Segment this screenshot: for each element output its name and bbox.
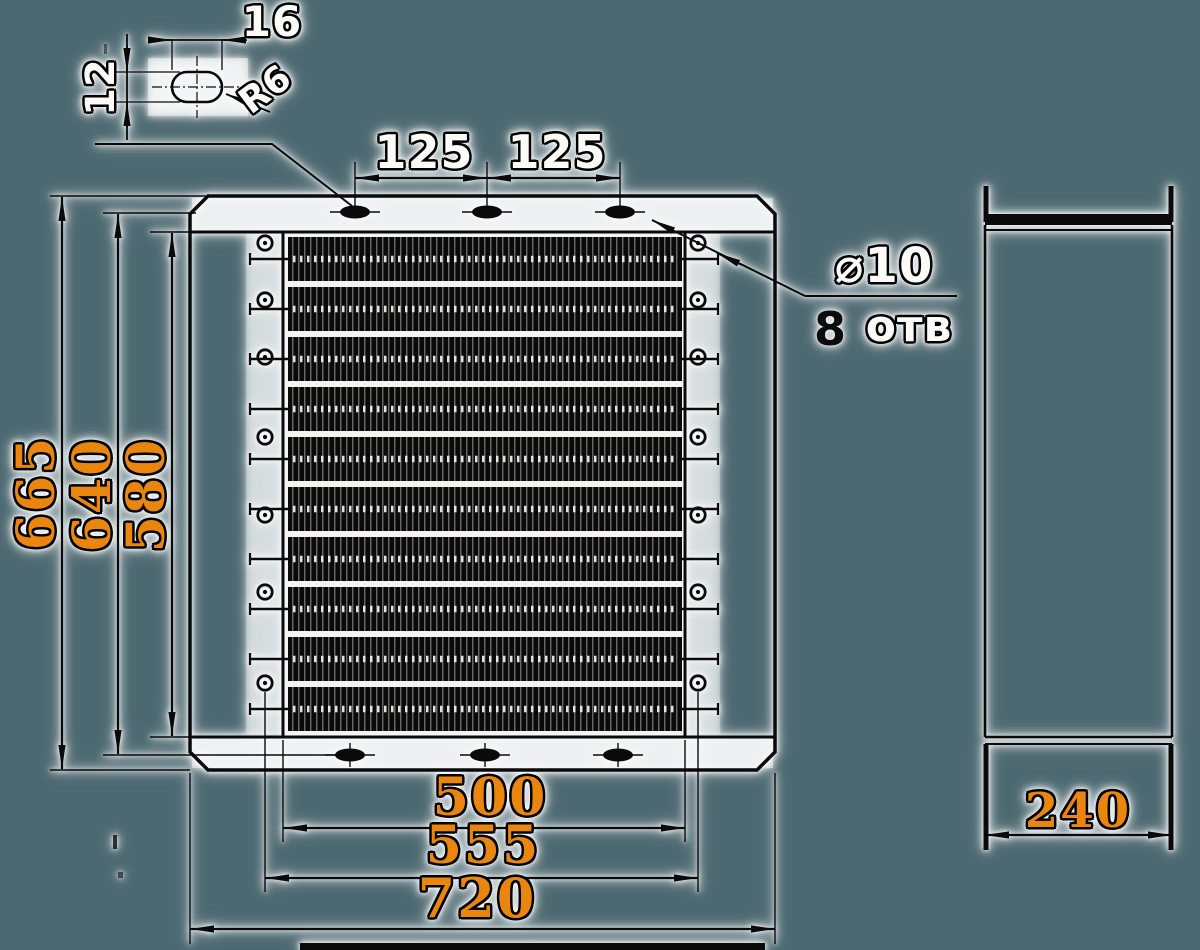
width-overall-label: 720 <box>418 871 537 925</box>
side-depth-label: 240 <box>1025 787 1131 835</box>
height-frame-inner-label: 580 <box>121 438 173 553</box>
drawing-canvas: 16 12 R6 125 125 ⌀10 8 отв 665 640 580 5… <box>0 0 1200 950</box>
pitch-right-label: 125 <box>507 129 606 175</box>
detail-height-label: 12 <box>81 58 121 116</box>
height-slot-centers-label: 640 <box>67 438 119 553</box>
hole-count-label: 8 <box>814 306 846 352</box>
pitch-left-label: 125 <box>374 129 473 175</box>
width-terminal-span-label: 555 <box>426 820 541 872</box>
side-view <box>985 186 1172 850</box>
hole-diameter-label: ⌀10 <box>835 242 934 290</box>
ink-layer: 16 12 R6 125 125 ⌀10 8 отв 665 640 580 5… <box>0 0 1200 950</box>
holes-word-label: отв <box>866 305 953 349</box>
height-overall-label: 665 <box>11 436 63 551</box>
detail-width-label: 16 <box>242 1 302 43</box>
